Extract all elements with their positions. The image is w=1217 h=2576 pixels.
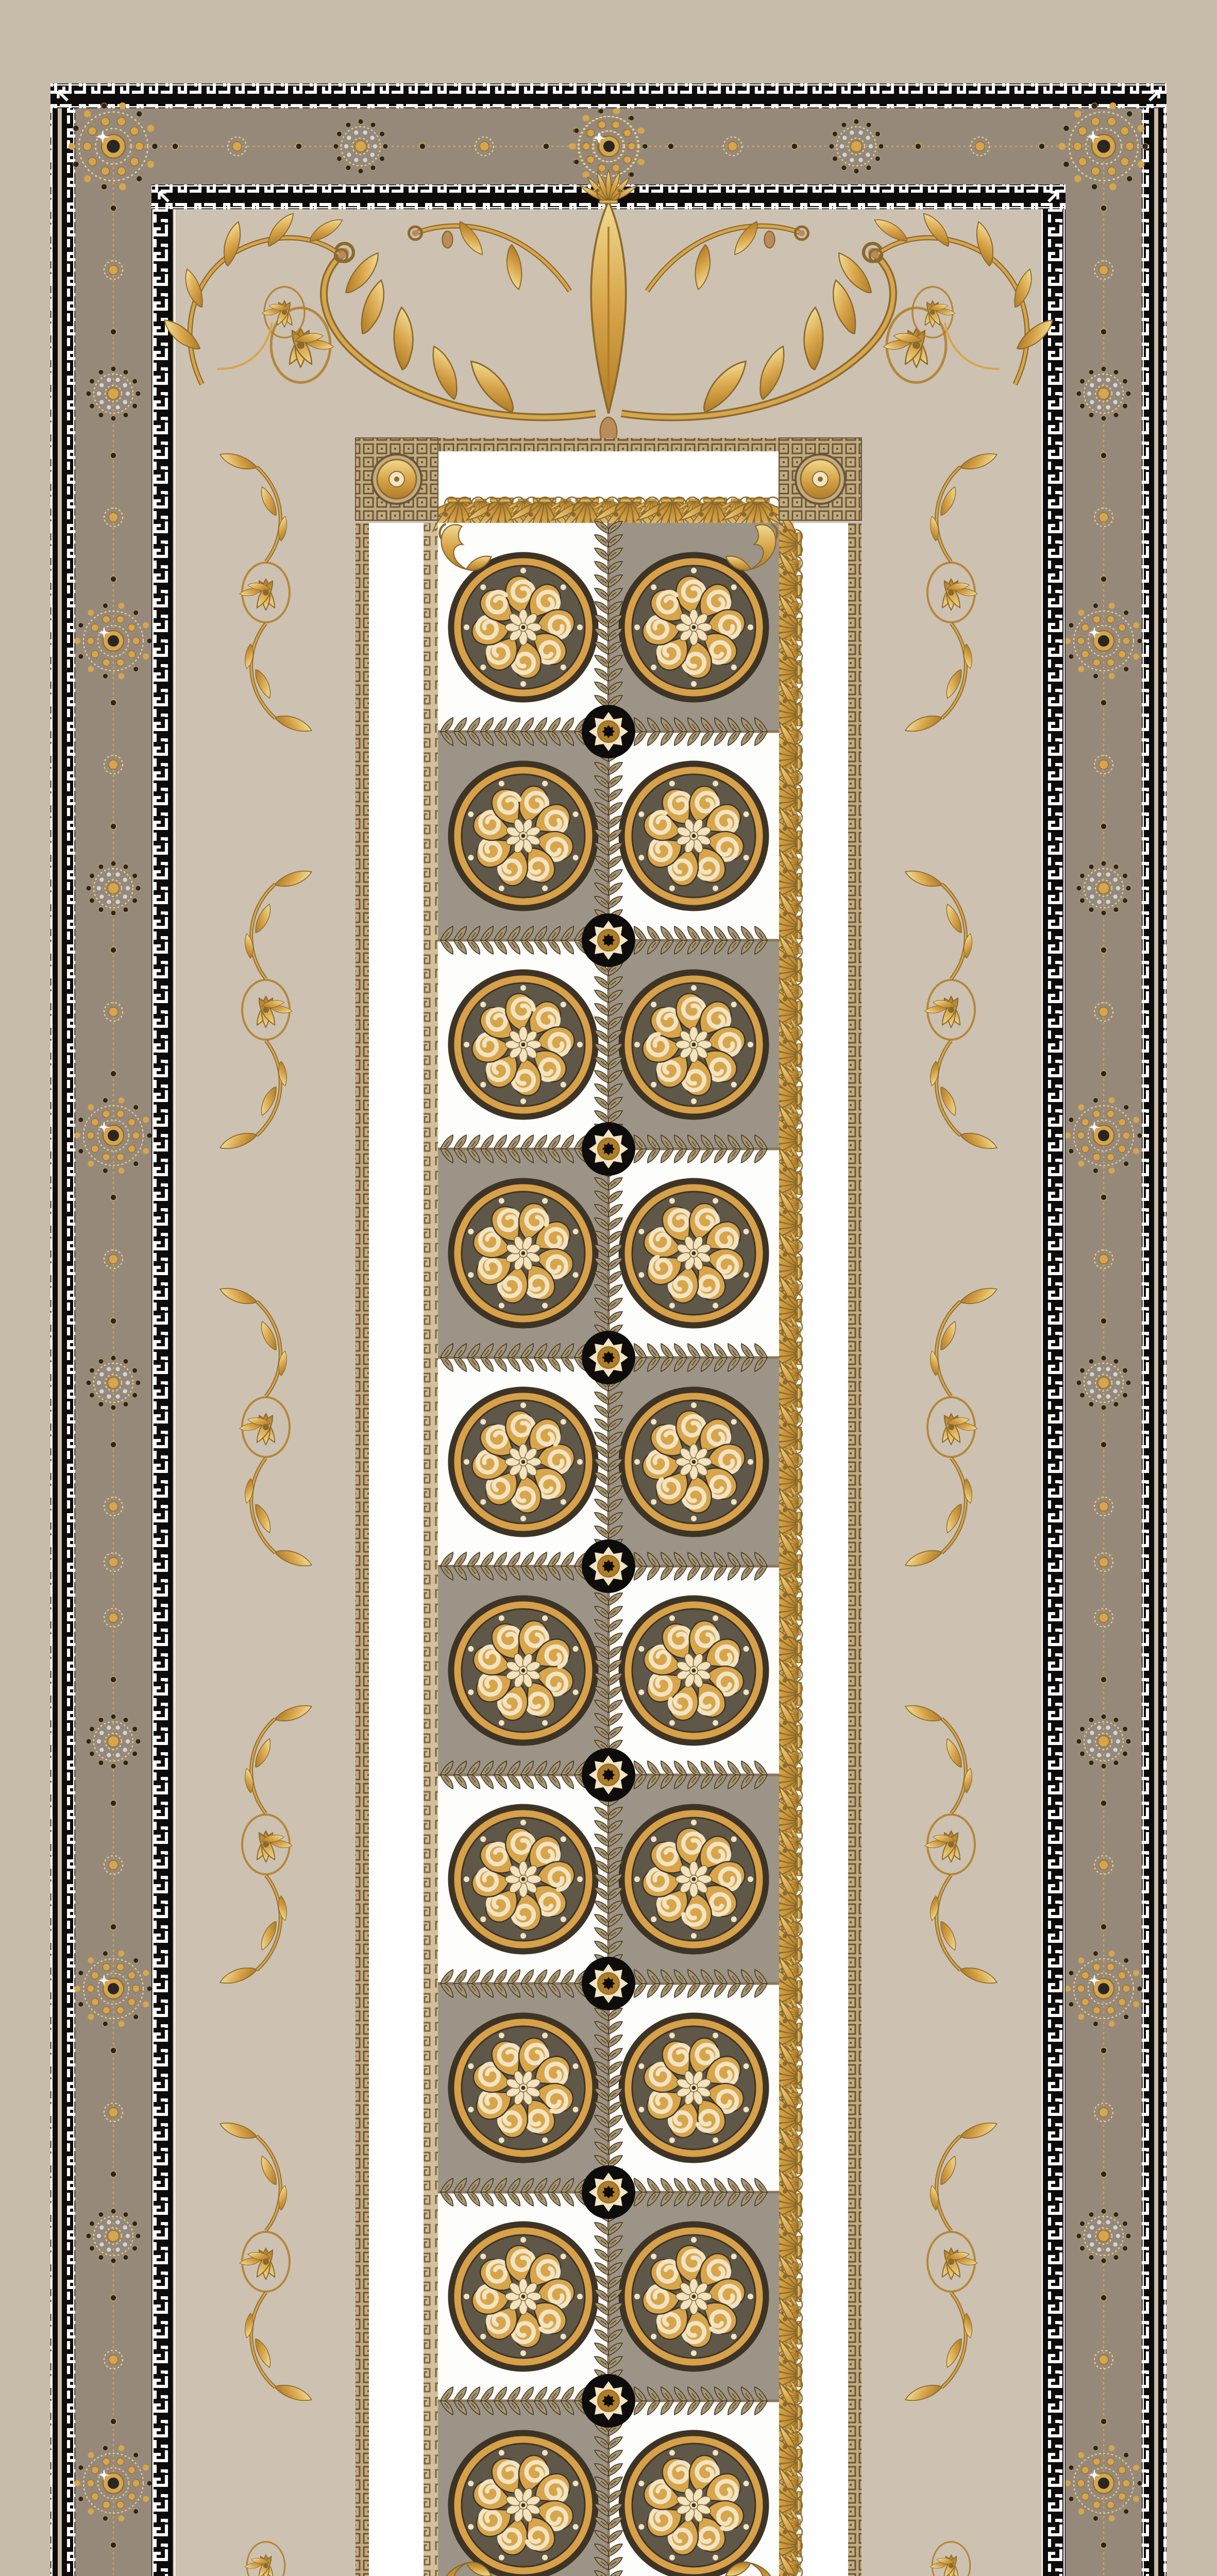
jewel-gem-icon (1101, 2418, 1107, 2425)
jewel-gem-icon (791, 143, 798, 149)
jewel-gem-icon (1101, 329, 1107, 335)
jewel-gem-icon (543, 143, 549, 149)
jewel-gem-icon (1101, 2542, 1107, 2548)
jewel-gem-icon (1101, 1924, 1107, 1930)
swirl-medallion-r1-c2 (619, 552, 769, 703)
jewel-gem-icon (110, 823, 116, 829)
star-button-6 (582, 1748, 635, 1802)
jewel-gem-icon (1101, 1194, 1107, 1200)
swirl-medallion-r1-c1 (448, 552, 599, 703)
jewel-gem-icon (110, 1071, 116, 1077)
jewel-gem-icon (110, 1194, 116, 1200)
jewel-gem-icon (110, 1800, 116, 1806)
jewel-gem-icon (1101, 947, 1107, 953)
jewel-gem-icon (1101, 2047, 1107, 2054)
jewel-gem-icon (1101, 823, 1107, 829)
panel-corner-block (356, 438, 438, 520)
star-button-1 (582, 705, 635, 758)
star-button-5 (582, 1539, 635, 1593)
jewel-gem-icon (1039, 143, 1045, 149)
generated-ornament (0, 0, 1217, 2576)
jewel-gem-icon (1101, 2295, 1107, 2301)
jewel-gem-icon (110, 1676, 116, 1683)
jewel-gem-icon (110, 1442, 116, 1448)
swirl-medallion-r5-c2 (619, 1387, 769, 1537)
jewel-gem-icon (110, 1924, 116, 1930)
jewel-gem-icon (1101, 1676, 1107, 1683)
jewel-gem-icon (110, 576, 116, 582)
swirl-medallion-r9-c2 (619, 2222, 769, 2372)
star-button-4 (582, 1331, 635, 1384)
jewel-gem-icon (110, 1318, 116, 1324)
jewel-gem-icon (296, 143, 302, 149)
jewel-gem-icon (668, 143, 674, 149)
jewel-gem-icon (110, 700, 116, 706)
jewel-gem-icon (1101, 1071, 1107, 1077)
swirl-medallion-r9-c1 (448, 2222, 599, 2372)
panel-corner-block (779, 438, 861, 520)
jewel-gem-icon (419, 143, 426, 149)
jewel-gem-icon (1101, 1800, 1107, 1806)
jewel-gem-icon (110, 452, 116, 459)
jewel-gem-icon (1101, 1442, 1107, 1448)
star-button-9 (582, 2374, 635, 2428)
jewel-gem-icon (172, 143, 178, 149)
scarf-print-canvas: SULTAN (0, 0, 1217, 2576)
jewel-gem-icon (1101, 2171, 1107, 2177)
jewel-gem-icon (1101, 205, 1107, 211)
jewel-gem-icon (110, 2418, 116, 2425)
jewel-gem-icon (110, 2047, 116, 2054)
jewel-gem-icon (915, 143, 921, 149)
jewel-gem-icon (110, 947, 116, 953)
star-button-7 (582, 1957, 635, 2010)
star-button-2 (582, 913, 635, 967)
jewel-gem-icon (110, 329, 116, 335)
star-button-8 (582, 2165, 635, 2219)
star-button-3 (582, 1122, 635, 1176)
jewel-gem-icon (1101, 700, 1107, 706)
swirl-medallion-r5-c1 (448, 1387, 599, 1537)
jewel-gem-icon (110, 205, 116, 211)
jewel-gem-icon (110, 2542, 116, 2548)
jewel-gem-icon (110, 2171, 116, 2177)
jewel-gem-icon (1101, 576, 1107, 582)
textile-artwork: SULTAN (0, 0, 1217, 2576)
jewel-gem-icon (110, 2295, 116, 2301)
jewel-gem-icon (1101, 452, 1107, 459)
jewel-gem-icon (1101, 1318, 1107, 1324)
